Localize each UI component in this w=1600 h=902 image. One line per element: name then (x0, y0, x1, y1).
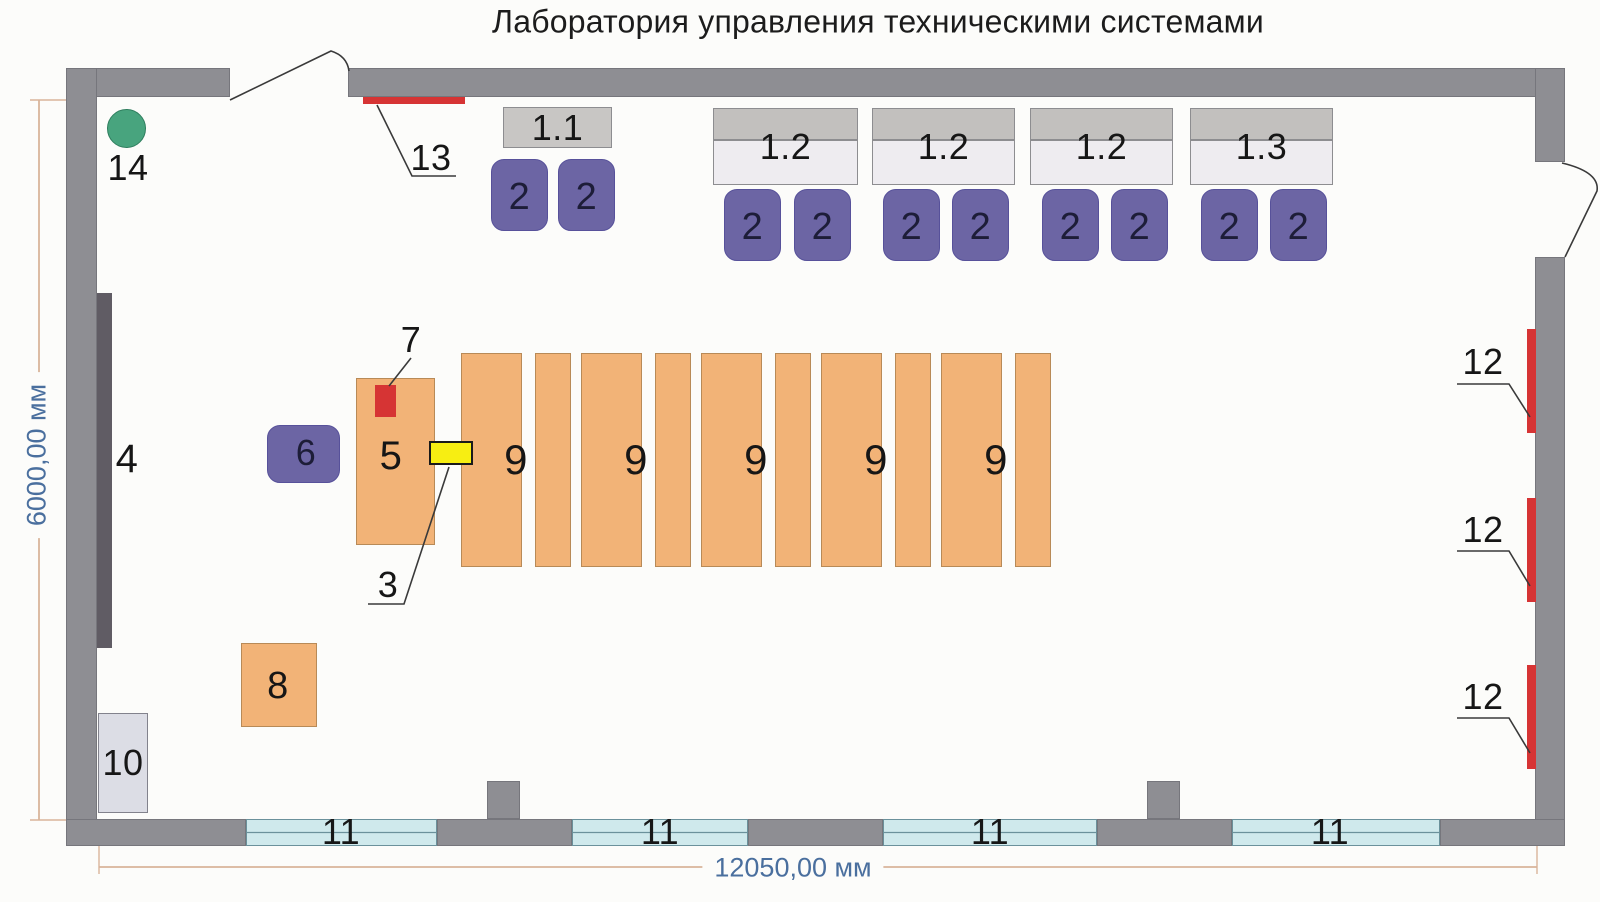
wall-top-right (348, 68, 1565, 97)
leader-12-1 (1457, 384, 1530, 417)
switch-3 (429, 441, 473, 465)
radiator-12-3 (1527, 665, 1536, 769)
chair-2-label: 2 (576, 178, 598, 216)
radiator-label-3: 12 (1462, 679, 1503, 715)
bench-8-label: 8 (267, 667, 289, 705)
chair-4-label: 2 (812, 208, 834, 246)
door-right (1562, 163, 1597, 257)
dimension-height-label: 6000,00 мм (22, 372, 53, 538)
lab-table-5-narrow (1015, 353, 1051, 567)
wall-right-upper (1535, 68, 1565, 162)
pillar-2 (1147, 781, 1180, 819)
label-14: 14 (107, 150, 148, 186)
label-4: 4 (116, 439, 139, 479)
chair-1-label: 2 (509, 178, 531, 216)
chair-9-label: 2 (1219, 208, 1241, 246)
floor-plan: Лаборатория управления техническими сист… (0, 0, 1600, 902)
lab-table-2-label: 9 (624, 439, 648, 481)
label-13: 13 (410, 140, 451, 176)
lab-table-3-label: 9 (744, 439, 768, 481)
pillar-1 (487, 781, 520, 819)
window-label-4: 11 (1311, 814, 1349, 850)
desk-1-2-3-label: 1.2 (1076, 129, 1128, 165)
radiator-label-1: 12 (1462, 344, 1503, 380)
window-label-2: 11 (641, 814, 679, 850)
door-top (230, 51, 349, 100)
desk-1-2-1-label: 1.2 (760, 129, 812, 165)
marker-14 (107, 109, 146, 148)
chair-7-label: 2 (1060, 208, 1082, 246)
radiator-label-2: 12 (1462, 512, 1503, 548)
lab-table-1-label: 9 (504, 439, 528, 481)
wall-bottom-1 (66, 819, 246, 846)
cabinet-10-label: 10 (102, 745, 143, 781)
desk-1-3-4-label: 1.3 (1236, 129, 1288, 165)
wall-left (66, 68, 97, 846)
lab-table-2-narrow (655, 353, 691, 567)
leader-12-2 (1457, 551, 1530, 586)
lab-table-1-narrow (535, 353, 571, 567)
chair-8-label: 2 (1129, 208, 1151, 246)
dimension-width-label: 12050,00 мм (702, 853, 883, 884)
lab-table-4-narrow (895, 353, 931, 567)
chair-5-label: 2 (901, 208, 923, 246)
window-label-3: 11 (971, 814, 1009, 850)
instructor-chair-6-label: 6 (296, 435, 317, 471)
lab-table-3-narrow (775, 353, 811, 567)
wall-bottom-2 (437, 819, 572, 846)
leader-12-3 (1457, 718, 1530, 753)
wall-bottom-3 (748, 819, 883, 846)
window-label-1: 11 (322, 814, 360, 850)
chair-3-label: 2 (742, 208, 764, 246)
chair-6-label: 2 (970, 208, 992, 246)
desk-1-2-2-label: 1.2 (918, 129, 970, 165)
label-7: 7 (401, 322, 422, 358)
wall-right-lower (1535, 257, 1565, 846)
demo-table-5-label: 5 (380, 436, 403, 476)
radiator-12-1 (1527, 329, 1536, 433)
radiator-12-2 (1527, 498, 1536, 602)
device-7 (375, 385, 396, 417)
heater-strip-13 (363, 97, 465, 104)
wall-bottom-4 (1097, 819, 1232, 846)
wall-bottom-5 (1440, 819, 1565, 846)
board-4 (97, 293, 112, 648)
page-title: Лаборатория управления техническими сист… (492, 4, 1264, 41)
lab-table-4-label: 9 (864, 439, 888, 481)
label-3: 3 (378, 567, 399, 603)
desk-1-1-0-label: 1.1 (532, 110, 584, 146)
chair-10-label: 2 (1288, 208, 1310, 246)
lab-table-5-label: 9 (984, 439, 1008, 481)
